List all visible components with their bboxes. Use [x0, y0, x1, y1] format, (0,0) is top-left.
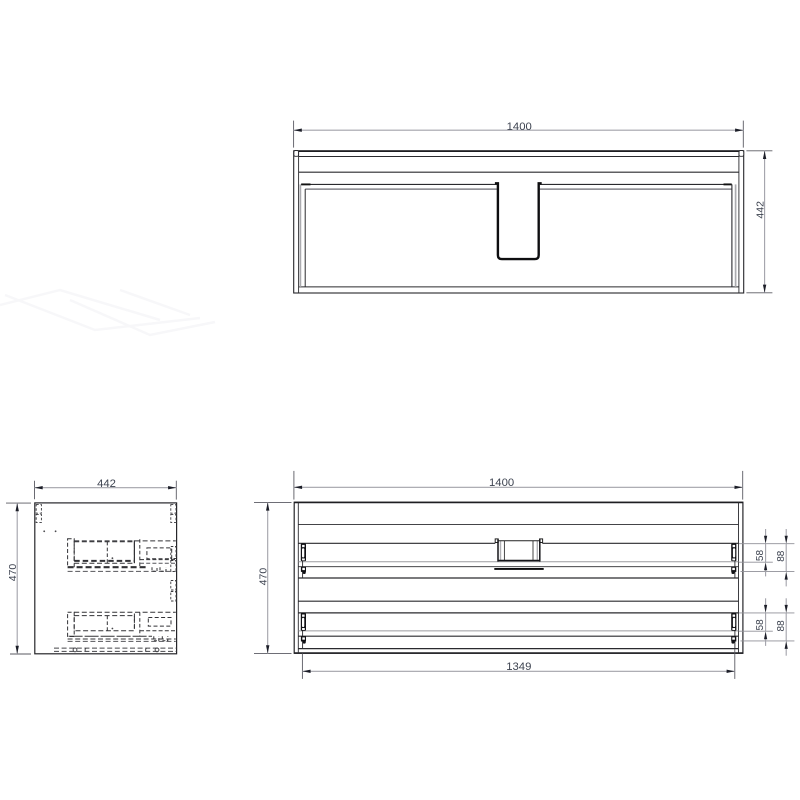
svg-text:470: 470: [257, 568, 269, 586]
svg-text:88: 88: [776, 550, 787, 562]
svg-text:470: 470: [7, 564, 19, 582]
svg-text:58: 58: [755, 619, 766, 631]
svg-text:442: 442: [754, 201, 766, 219]
svg-text:1349: 1349: [506, 661, 531, 673]
svg-text:1400: 1400: [489, 477, 514, 489]
svg-text:442: 442: [97, 478, 116, 490]
svg-text:58: 58: [755, 550, 766, 562]
svg-text:88: 88: [776, 620, 787, 632]
svg-text:1400: 1400: [507, 121, 532, 133]
